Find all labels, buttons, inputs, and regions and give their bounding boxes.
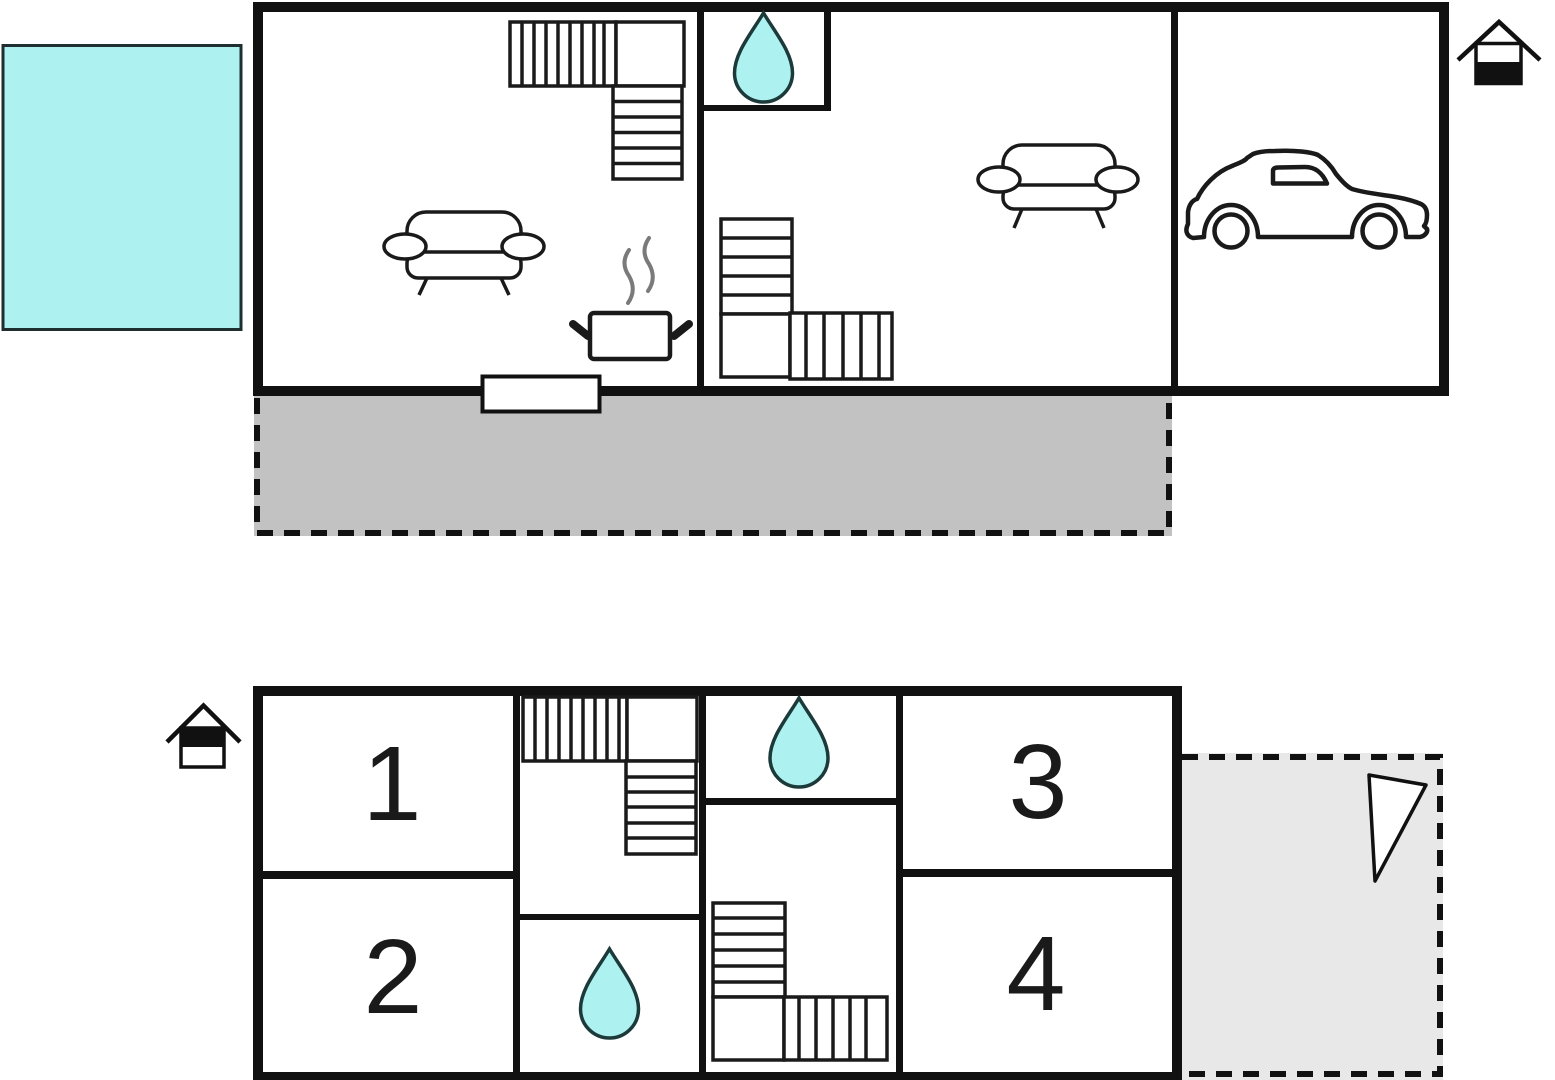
svg-text:1: 1 — [363, 725, 422, 843]
svg-text:4: 4 — [1007, 915, 1066, 1033]
svg-text:3: 3 — [1009, 723, 1068, 841]
svg-text:2: 2 — [364, 918, 423, 1036]
